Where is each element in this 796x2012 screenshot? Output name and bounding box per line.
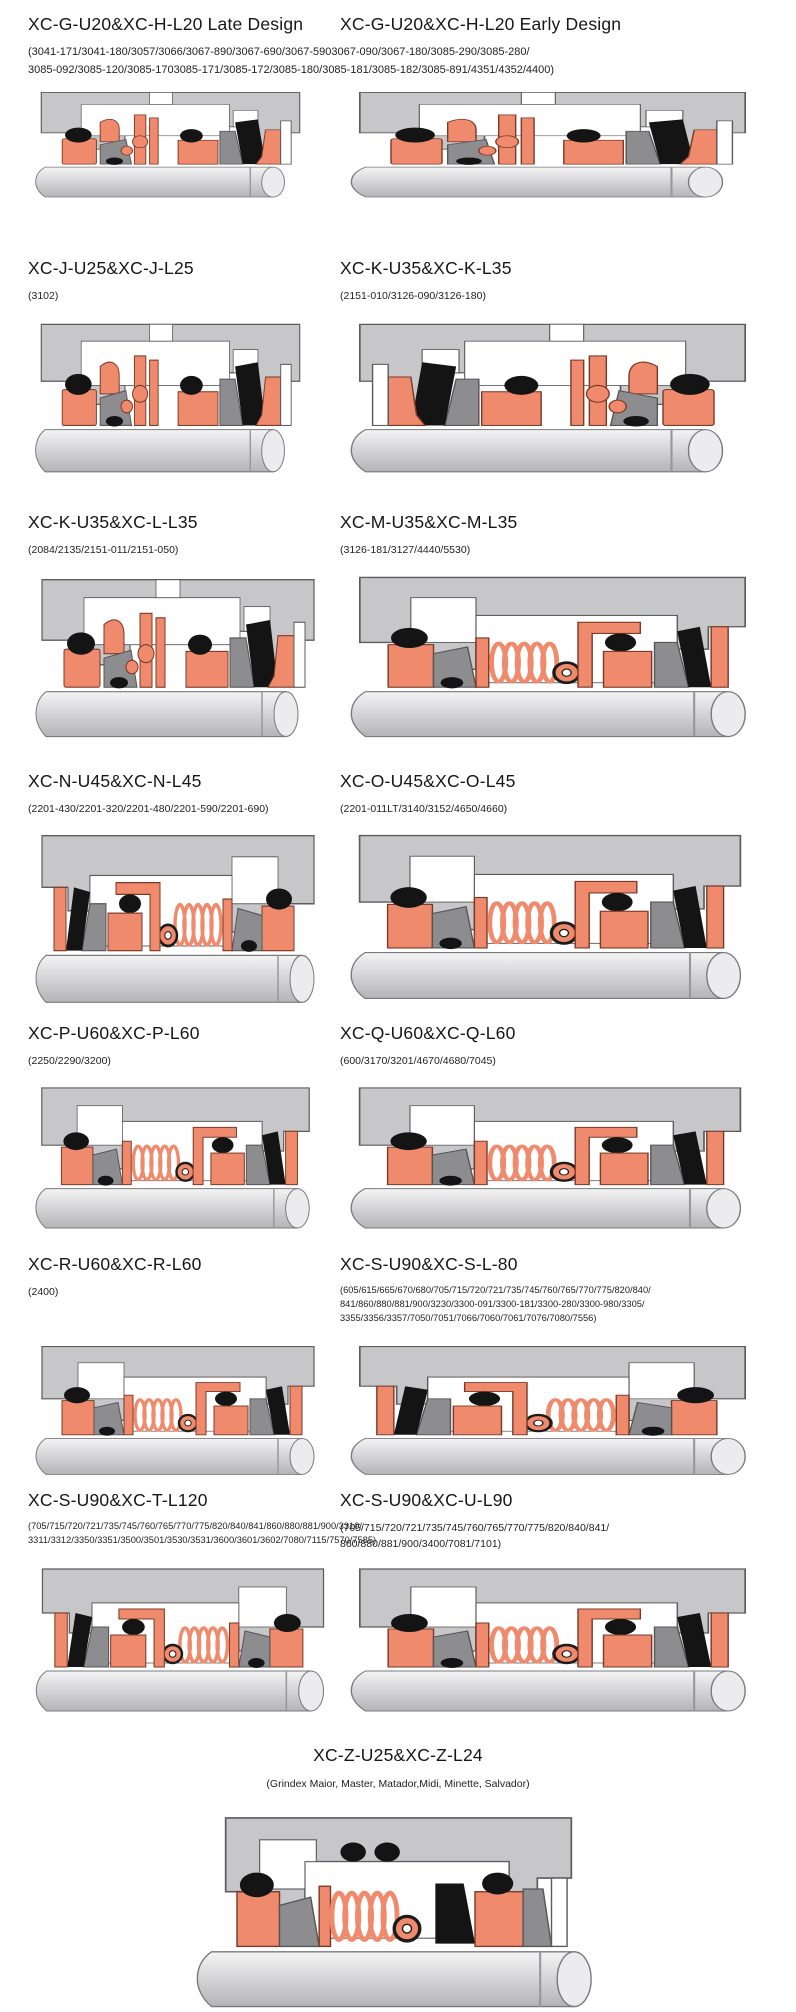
seal-cell: XC-O-U45&XC-O-L45(2201-011LT/3140/3152/4… bbox=[340, 771, 780, 1004]
seal-cell: XC-P-U60&XC-P-L60(2250/2290/3200) bbox=[28, 1023, 340, 1232]
seal-cell: XC-N-U45&XC-N-L45(2201-430/2201-320/2201… bbox=[28, 771, 340, 1008]
part-numbers-line: 3085-092/3085-120/3085-1703085-171/3085-… bbox=[28, 62, 796, 80]
seal-section: XC-R-U60&XC-R-L60(2400)XC-S-U90&XC-S-L-8… bbox=[0, 1254, 796, 1479]
part-numbers-line: (2084/2135/2151-011/2151-050) bbox=[28, 542, 340, 558]
seal-cross-section-diagram bbox=[340, 88, 780, 200]
part-numbers: (2201-430/2201-320/2201-480/2201-590/220… bbox=[28, 801, 340, 822]
seal-cross-section-diagram bbox=[340, 1565, 780, 1715]
seal-model-title: XC-G-U20&XC-H-L20 Late Design bbox=[28, 14, 340, 35]
seal-cell: XC-S-U90&XC-U-L90(705/715/720/721/735/74… bbox=[340, 1490, 780, 1715]
part-numbers-line: (600/3170/3201/4670/4680/7045) bbox=[340, 1053, 780, 1069]
part-numbers-line: (605/615/665/670/680/705/715/720/721/735… bbox=[340, 1284, 780, 1298]
seal-cell: XC-Z-U25&XC-Z-L24(Grindex Maior, Master,… bbox=[186, 1745, 611, 2012]
seal-model-title: XC-R-U60&XC-R-L60 bbox=[28, 1254, 340, 1275]
seal-cross-section-diagram bbox=[340, 1343, 780, 1478]
part-numbers-line: (2400) bbox=[28, 1284, 340, 1300]
seal-model-title: XC-P-U60&XC-P-L60 bbox=[28, 1023, 340, 1044]
seal-cross-section-svg bbox=[28, 1343, 328, 1478]
part-numbers: (Grindex Maior, Master, Matador,Midi, Mi… bbox=[266, 1776, 529, 1797]
seal-model-title: XC-S-U90&XC-S-L-80 bbox=[340, 1254, 780, 1275]
seal-cross-section-svg bbox=[28, 1084, 323, 1232]
seal-model-title: XC-K-U35&XC-L-L35 bbox=[28, 512, 340, 533]
seal-model-title: XC-S-U90&XC-T-L120 bbox=[28, 1490, 340, 1511]
seal-cell bbox=[28, 88, 340, 200]
part-numbers: (3126-181/3127/4440/5530) bbox=[340, 542, 780, 563]
seal-cross-section-svg bbox=[340, 1343, 765, 1478]
seal-section: XC-N-U45&XC-N-L45(2201-430/2201-320/2201… bbox=[0, 771, 796, 1008]
part-numbers-line: (705/715/720/721/735/745/760/765/770/775… bbox=[28, 1520, 340, 1534]
seal-section: XC-J-U25&XC-J-L25(3102)XC-K-U35&XC-K-L35… bbox=[0, 258, 796, 477]
part-numbers-line: (3126-181/3127/4440/5530) bbox=[340, 542, 780, 558]
part-numbers-line: 860/880/881/900/3400/7081/7101) bbox=[340, 1536, 780, 1552]
seal-cross-section-diagram bbox=[28, 1343, 340, 1478]
part-numbers-line: (3102) bbox=[28, 288, 340, 304]
diagram-pair: XC-R-U60&XC-R-L60(2400)XC-S-U90&XC-S-L-8… bbox=[0, 1254, 796, 1479]
seal-cross-section-svg bbox=[28, 573, 328, 741]
seal-cell: XC-S-U90&XC-S-L-80(605/615/665/670/680/7… bbox=[340, 1254, 780, 1479]
seal-cross-section-svg bbox=[28, 1565, 338, 1715]
seal-cell: XC-R-U60&XC-R-L60(2400) bbox=[28, 1254, 340, 1479]
part-numbers: (705/715/720/721/735/745/760/765/770/775… bbox=[28, 1520, 340, 1555]
seal-cell: XC-S-U90&XC-T-L120(705/715/720/721/735/7… bbox=[28, 1490, 340, 1715]
seal-cell: XC-K-U35&XC-L-L35(2084/2135/2151-011/215… bbox=[28, 512, 340, 741]
seal-catalog-page: XC-G-U20&XC-H-L20 Late DesignXC-G-U20&XC… bbox=[0, 0, 796, 2012]
seal-cell bbox=[340, 88, 780, 200]
seal-cross-section-svg bbox=[340, 573, 765, 741]
seal-cell: XC-M-U35&XC-M-L35(3126-181/3127/4440/553… bbox=[340, 512, 780, 741]
seal-model-title: XC-O-U45&XC-O-L45 bbox=[340, 771, 780, 792]
part-numbers-line: 3311/3312/3350/3351/3500/3501/3530/3531/… bbox=[28, 1534, 340, 1548]
seal-model-title: XC-Q-U60&XC-Q-L60 bbox=[340, 1023, 780, 1044]
part-numbers: (3102) bbox=[28, 288, 340, 309]
seal-cell: XC-J-U25&XC-J-L25(3102) bbox=[28, 258, 340, 477]
seal-section: XC-G-U20&XC-H-L20 Late DesignXC-G-U20&XC… bbox=[0, 14, 796, 200]
seal-cross-section-diagram bbox=[340, 831, 780, 1003]
seal-cross-section-svg bbox=[340, 831, 760, 1003]
part-numbers: (2250/2290/3200) bbox=[28, 1053, 340, 1074]
seal-model-title: XC-N-U45&XC-N-L45 bbox=[28, 771, 340, 792]
seal-cross-section-diagram bbox=[28, 318, 340, 476]
diagram-pair: XC-S-U90&XC-T-L120(705/715/720/721/735/7… bbox=[0, 1490, 796, 1715]
diagram-pair: XC-Z-U25&XC-Z-L24(Grindex Maior, Master,… bbox=[0, 1745, 796, 2012]
seal-model-title: XC-Z-U25&XC-Z-L24 bbox=[313, 1745, 483, 1766]
seal-cross-section-diagram bbox=[340, 318, 780, 476]
seal-cross-section-diagram bbox=[340, 1084, 780, 1232]
part-numbers: (2151-010/3126-090/3126-180) bbox=[340, 288, 780, 309]
seal-cross-section-svg bbox=[340, 1084, 760, 1232]
part-numbers-line: (705/715/720/721/735/745/760/765/770/775… bbox=[340, 1520, 780, 1536]
seal-section: XC-P-U60&XC-P-L60(2250/2290/3200)XC-Q-U6… bbox=[0, 1023, 796, 1232]
part-numbers: (705/715/720/721/735/745/760/765/770/775… bbox=[340, 1520, 780, 1555]
part-numbers-line: (Grindex Maior, Master, Matador,Midi, Mi… bbox=[266, 1776, 529, 1792]
diagram-pair bbox=[0, 88, 796, 200]
seal-cross-section-diagram bbox=[340, 573, 780, 741]
seal-model-title: XC-S-U90&XC-U-L90 bbox=[340, 1490, 780, 1511]
seal-cross-section-diagram bbox=[28, 1084, 340, 1232]
diagram-pair: XC-N-U45&XC-N-L45(2201-430/2201-320/2201… bbox=[0, 771, 796, 1008]
seal-cross-section-svg bbox=[186, 1807, 611, 2012]
seal-cross-section-diagram bbox=[28, 831, 340, 1007]
part-numbers: (600/3170/3201/4670/4680/7045) bbox=[340, 1053, 780, 1074]
seal-cross-section-svg bbox=[340, 1565, 765, 1715]
part-numbers-line: 841/860/880/881/900/3230/3300-091/3300-1… bbox=[340, 1298, 780, 1312]
seal-model-title: XC-J-U25&XC-J-L25 bbox=[28, 258, 340, 279]
seal-model-title: XC-K-U35&XC-K-L35 bbox=[340, 258, 780, 279]
part-numbers: (3041-171/3041-180/3057/3066/3067-890/30… bbox=[28, 44, 796, 80]
seal-cell: XC-Q-U60&XC-Q-L60(600/3170/3201/4670/468… bbox=[340, 1023, 780, 1232]
diagram-pair: XC-J-U25&XC-J-L25(3102)XC-K-U35&XC-K-L35… bbox=[0, 258, 796, 477]
diagram-pair: XC-P-U60&XC-P-L60(2250/2290/3200)XC-Q-U6… bbox=[0, 1023, 796, 1232]
seal-section: XC-Z-U25&XC-Z-L24(Grindex Maior, Master,… bbox=[0, 1745, 796, 2012]
seal-cross-section-svg bbox=[28, 831, 328, 1007]
section-titles: XC-G-U20&XC-H-L20 Late DesignXC-G-U20&XC… bbox=[0, 14, 796, 44]
part-numbers: (605/615/665/670/680/705/715/720/721/735… bbox=[340, 1284, 780, 1334]
seal-cross-section-svg bbox=[340, 318, 765, 476]
seal-model-title: XC-G-U20&XC-H-L20 Early Design bbox=[340, 14, 621, 35]
seal-cross-section-diagram bbox=[186, 1807, 611, 2012]
part-numbers-line: (2151-010/3126-090/3126-180) bbox=[340, 288, 780, 304]
part-numbers-line: (2250/2290/3200) bbox=[28, 1053, 340, 1069]
part-numbers-line: (3041-171/3041-180/3057/3066/3067-890/30… bbox=[28, 44, 796, 62]
seal-cross-section-diagram bbox=[28, 1565, 340, 1715]
seal-cross-section-svg bbox=[28, 318, 313, 476]
part-numbers: (2201-011LT/3140/3152/4650/4660) bbox=[340, 801, 780, 822]
part-numbers-line: (2201-011LT/3140/3152/4650/4660) bbox=[340, 801, 780, 817]
seal-model-title: XC-M-U35&XC-M-L35 bbox=[340, 512, 780, 533]
part-numbers: (2400) bbox=[28, 1284, 340, 1334]
part-numbers-line: (2201-430/2201-320/2201-480/2201-590/220… bbox=[28, 801, 340, 817]
seal-section: XC-S-U90&XC-T-L120(705/715/720/721/735/7… bbox=[0, 1490, 796, 1715]
part-numbers-line: 3355/3356/3357/7050/7051/7066/7060/7061/… bbox=[340, 1312, 780, 1326]
seal-cross-section-svg bbox=[340, 88, 765, 200]
part-numbers: (2084/2135/2151-011/2151-050) bbox=[28, 542, 340, 563]
seal-section: XC-K-U35&XC-L-L35(2084/2135/2151-011/215… bbox=[0, 512, 796, 741]
seal-cross-section-diagram bbox=[28, 88, 340, 200]
seal-cross-section-diagram bbox=[28, 573, 340, 741]
seal-cross-section-svg bbox=[28, 88, 313, 200]
diagram-pair: XC-K-U35&XC-L-L35(2084/2135/2151-011/215… bbox=[0, 512, 796, 741]
seal-cell: XC-K-U35&XC-K-L35(2151-010/3126-090/3126… bbox=[340, 258, 780, 477]
